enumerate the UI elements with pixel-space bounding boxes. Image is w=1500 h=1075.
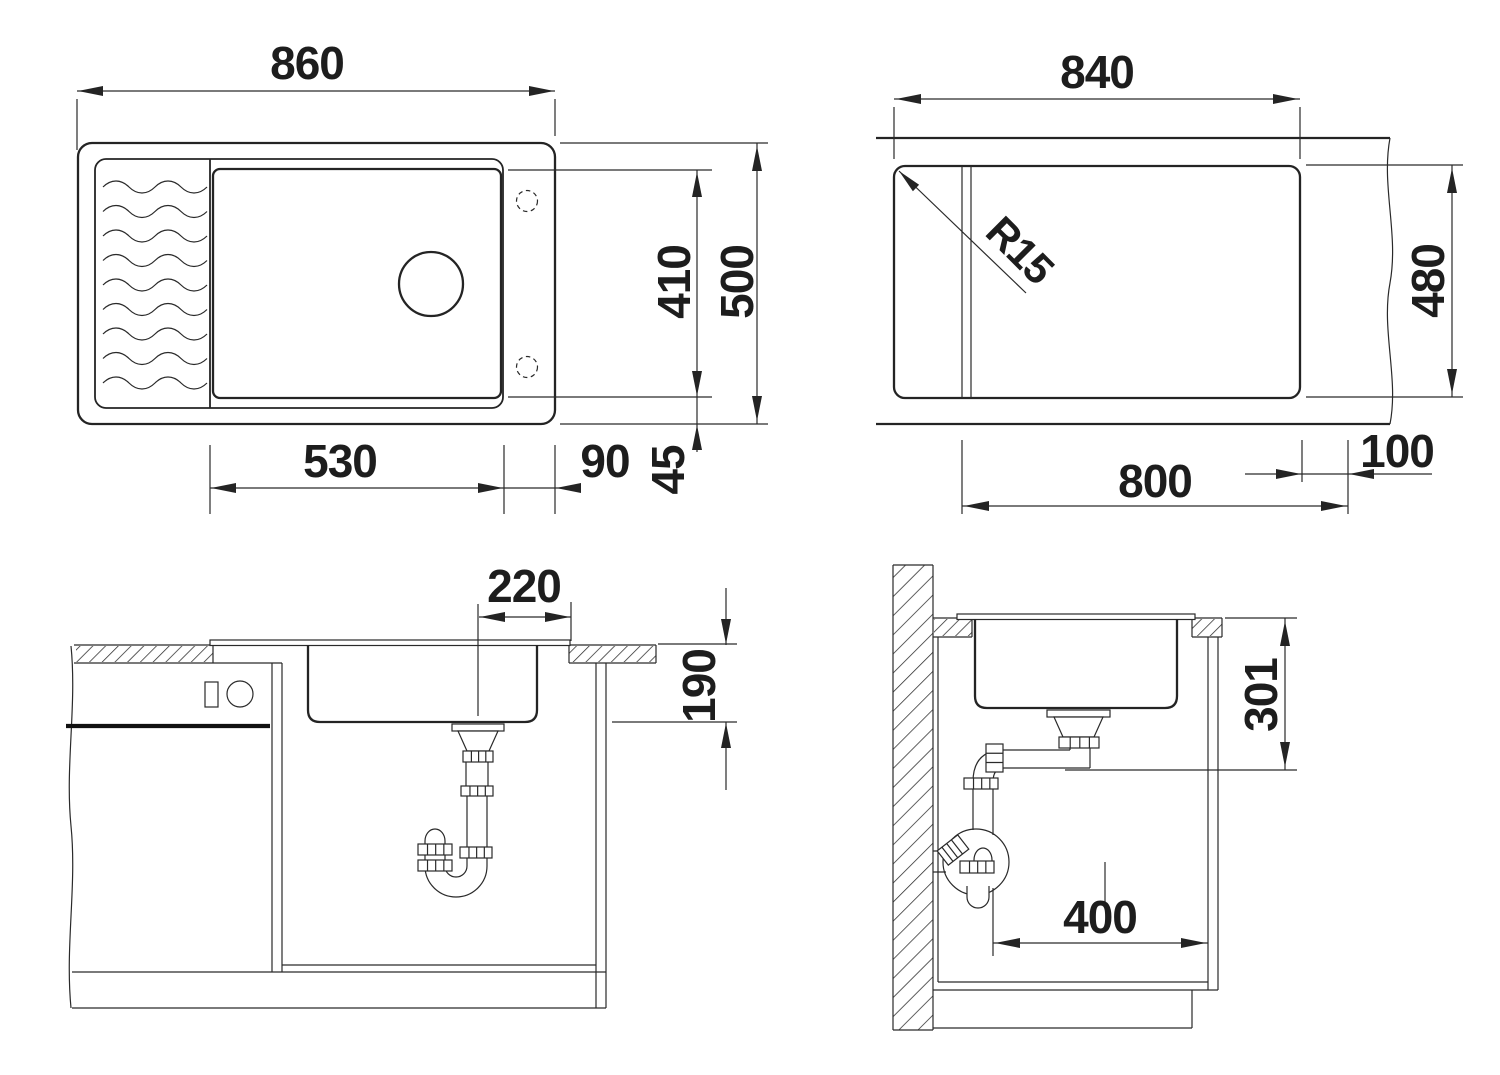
dim-label-400: 400	[1063, 891, 1137, 943]
dim-arrow-icon	[752, 396, 762, 421]
dim-lower-width: 800 100	[962, 425, 1434, 514]
dim-label-45: 45	[642, 445, 694, 495]
dim-label-220: 220	[487, 560, 561, 612]
wall-hatch	[893, 565, 933, 1030]
dim-bowl-depth: 190	[612, 588, 737, 790]
drain-hole	[399, 252, 463, 316]
counter-hatch-left	[934, 619, 972, 636]
view-front-section: 220 190	[66, 560, 737, 1008]
dim-outlet-height: 301	[1065, 618, 1297, 770]
dim-label-530: 530	[303, 435, 377, 487]
sink-flange	[210, 640, 570, 646]
dim-arrow-icon	[896, 94, 921, 104]
dim-label-500: 500	[711, 245, 763, 319]
drainboard-wave	[103, 230, 207, 242]
counter-outline-side	[933, 618, 1222, 637]
bowl-outline	[213, 169, 501, 398]
appliance-knob-icon	[227, 681, 253, 707]
drainboard-wave	[103, 377, 207, 389]
counter-hatch-right	[1192, 619, 1222, 636]
dim-label-190: 190	[673, 649, 725, 723]
sink-outline	[78, 143, 555, 424]
pipe-nut	[418, 844, 452, 855]
strainer-flange	[452, 724, 504, 731]
pipe-nut	[1059, 737, 1099, 748]
strainer-cup-side	[1054, 717, 1103, 737]
dim-label-90: 90	[580, 435, 629, 487]
dim-arrow-icon	[1280, 742, 1290, 767]
dim-label-301: 301	[1235, 658, 1287, 732]
dim-arrow-icon	[1447, 168, 1457, 193]
technical-drawing: 860 410 500 45 530 90 R15 840	[0, 0, 1500, 1075]
strainer-flange-side	[1047, 710, 1110, 717]
dim-depths: 410 500 45	[508, 143, 768, 495]
dim-arrow-icon	[721, 619, 731, 644]
dim-wall-clearance: 400	[993, 888, 1208, 956]
radius-callout: R15	[899, 171, 1063, 293]
dim-arrow-icon	[692, 425, 702, 450]
bowl-section-side	[975, 619, 1177, 708]
dim-arrow-icon	[545, 612, 570, 622]
dim-arrow-icon	[478, 483, 503, 493]
dim-arrow-icon	[1321, 501, 1346, 511]
dim-overall-width: 860	[77, 37, 555, 150]
dim-arrow-icon	[1181, 938, 1206, 948]
drainboard-wave	[103, 279, 207, 291]
tap-hole-top	[517, 191, 538, 212]
dim-arrow-icon	[692, 172, 702, 197]
strainer-cup	[458, 731, 498, 751]
countertop-edges	[876, 138, 1390, 424]
pipe-nut	[964, 778, 998, 789]
sink-flange-side	[957, 614, 1195, 620]
dim-arrow-icon	[995, 938, 1020, 948]
dim-label-840: 840	[1060, 46, 1134, 98]
drainboard-wave	[103, 181, 207, 193]
dim-label-800: 800	[1118, 455, 1192, 507]
dim-arrow-icon	[1280, 621, 1290, 646]
dim-arrow-icon	[1273, 94, 1298, 104]
dim-arrow-icon	[211, 483, 236, 493]
cutout-outline	[894, 166, 1300, 398]
dim-arrow-icon	[78, 86, 103, 96]
pipe-nut	[986, 744, 1003, 772]
dim-arrow-icon	[529, 86, 554, 96]
cutout-step-lines	[962, 166, 971, 398]
dim-label-480: 480	[1402, 244, 1454, 318]
pipe-nut	[960, 861, 994, 873]
dim-drain-offset: 220	[479, 560, 571, 641]
dim-label-860: 860	[270, 37, 344, 89]
pipe-nuts-front	[418, 751, 493, 871]
view-sink-plan: 860 410 500 45 530 90	[77, 37, 768, 514]
dim-arrow-icon	[1447, 369, 1457, 394]
break-line	[1387, 138, 1392, 424]
dim-cutout-width: 840	[894, 46, 1300, 159]
drainboard-wave	[103, 353, 207, 365]
dim-arrow-icon	[692, 371, 702, 396]
drawing-canvas: 860 410 500 45 530 90 R15 840	[0, 0, 1500, 1075]
drainboard-wave	[103, 328, 207, 340]
view-cutout-plan: R15 840 480 800 100	[876, 46, 1463, 514]
drainboard-wave	[103, 255, 207, 267]
appliance-control-rect	[205, 682, 218, 707]
dim-arrow-icon	[556, 483, 581, 493]
drainboard-waves	[103, 181, 207, 389]
bowl-section	[308, 645, 537, 722]
dim-bowl-width: 530 90	[210, 435, 630, 514]
view-side-section: 301 400	[893, 565, 1297, 1030]
dim-arrow-icon	[721, 723, 731, 748]
drainboard-wave	[103, 304, 207, 316]
dim-arrow-icon	[1276, 469, 1301, 479]
drainboard-wave	[103, 206, 207, 218]
trap-outlet-cap	[967, 886, 989, 908]
dim-label-100: 100	[1360, 425, 1434, 477]
dim-cutout-depth: 480	[1306, 165, 1463, 397]
dimension-arrows	[78, 86, 1457, 948]
countertop-hatch-right	[569, 646, 656, 662]
pipe-nut	[418, 860, 452, 871]
cabinet-front	[66, 646, 606, 1008]
dim-label-r15: R15	[977, 207, 1063, 293]
dim-arrow-icon	[480, 612, 505, 622]
countertop-hatch-left	[76, 646, 213, 662]
dim-arrow-icon	[752, 146, 762, 171]
break-line-left	[69, 646, 72, 1008]
dim-arrow-icon	[964, 501, 989, 511]
tap-hole-bottom	[517, 357, 538, 378]
pipe-nut	[460, 847, 492, 858]
dim-label-410: 410	[648, 245, 700, 319]
pipe-nut	[461, 786, 493, 796]
